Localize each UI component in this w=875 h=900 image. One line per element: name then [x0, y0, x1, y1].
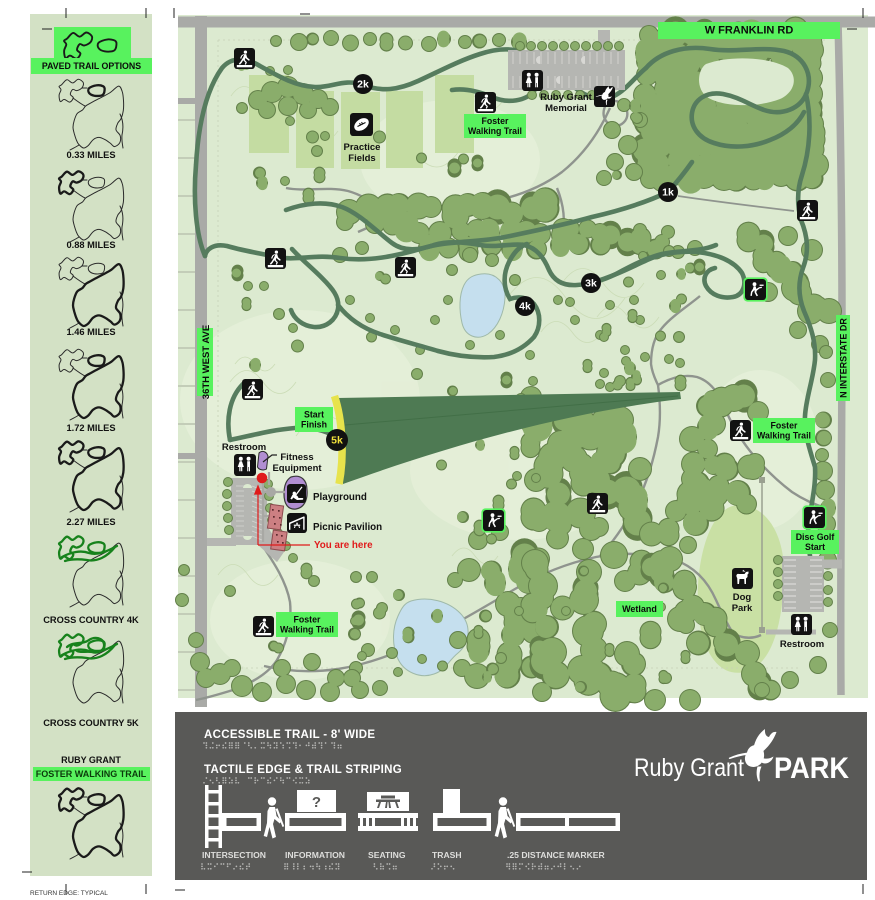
svg-text:CROSS COUNTRY 4K: CROSS COUNTRY 4K — [43, 615, 139, 625]
svg-text:Walking Trail: Walking Trail — [280, 625, 334, 635]
svg-text:Fitness: Fitness — [280, 452, 313, 463]
svg-text:0.33 MILES: 0.33 MILES — [66, 150, 115, 160]
svg-text:Start: Start — [304, 410, 324, 420]
svg-text:PAVED TRAIL OPTIONS: PAVED TRAIL OPTIONS — [42, 61, 141, 71]
svg-text:TACTILE EDGE & TRAIL STRIPING: TACTILE EDGE & TRAIL STRIPING — [204, 764, 402, 776]
svg-text:?: ? — [312, 794, 321, 811]
svg-text:Start: Start — [805, 542, 825, 552]
svg-text:RUBY GRANT: RUBY GRANT — [61, 755, 121, 765]
svg-text:1k: 1k — [662, 186, 674, 198]
svg-text:TRASH: TRASH — [432, 850, 462, 860]
svg-text:Dog: Dog — [733, 592, 752, 603]
svg-text:Walking Trail: Walking Trail — [468, 126, 522, 136]
svg-text:ACCESSIBLE TRAIL - 8' WIDE: ACCESSIBLE TRAIL - 8' WIDE — [204, 729, 375, 741]
svg-text:.25 DISTANCE MARKER: .25 DISTANCE MARKER — [507, 850, 606, 860]
svg-text:Foster: Foster — [294, 615, 321, 625]
svg-text:Picnic Pavilion: Picnic Pavilion — [313, 522, 382, 533]
svg-text:SEATING: SEATING — [368, 850, 406, 860]
svg-text:Fields: Fields — [348, 153, 375, 164]
svg-text:INFORMATION: INFORMATION — [285, 850, 345, 860]
svg-text:Memorial: Memorial — [545, 103, 587, 114]
svg-text:36TH WEST AVE: 36TH WEST AVE — [201, 325, 212, 399]
svg-text:Ruby Grant: Ruby Grant — [634, 754, 744, 782]
svg-text:INTERSECTION: INTERSECTION — [202, 850, 266, 860]
svg-text:1.46 MILES: 1.46 MILES — [66, 327, 115, 337]
svg-text:4k: 4k — [519, 300, 531, 312]
svg-text:FOSTER WALKING TRAIL: FOSTER WALKING TRAIL — [36, 769, 147, 779]
svg-text:1.72 MILES: 1.72 MILES — [66, 423, 115, 433]
svg-text:3k: 3k — [585, 277, 597, 289]
svg-text:Foster: Foster — [771, 421, 798, 431]
svg-text:N INTERSTATE DR: N INTERSTATE DR — [839, 318, 849, 398]
svg-text:2.27 MILES: 2.27 MILES — [66, 517, 115, 527]
svg-text:Wetland: Wetland — [622, 604, 657, 614]
svg-text:Equipment: Equipment — [272, 463, 322, 474]
svg-text:Park: Park — [732, 603, 753, 614]
svg-text:Foster: Foster — [482, 116, 509, 126]
svg-text:W FRANKLIN RD: W FRANKLIN RD — [705, 25, 794, 37]
svg-text:Restroom: Restroom — [222, 442, 266, 453]
svg-text:Practice: Practice — [344, 142, 381, 153]
svg-text:Ruby Grant: Ruby Grant — [540, 92, 593, 103]
svg-text:Restroom: Restroom — [780, 639, 824, 650]
svg-text:5k: 5k — [331, 434, 343, 446]
svg-text:PARK: PARK — [774, 752, 849, 785]
svg-text:You are here: You are here — [314, 540, 373, 551]
svg-text:0.88 MILES: 0.88 MILES — [66, 240, 115, 250]
svg-text:2k: 2k — [357, 78, 369, 90]
svg-text:Playground: Playground — [313, 492, 367, 503]
svg-text:Finish: Finish — [301, 420, 327, 430]
svg-text:Disc Golf: Disc Golf — [796, 532, 835, 542]
svg-text:RETURN EDGE: TYPICAL: RETURN EDGE: TYPICAL — [30, 890, 108, 897]
svg-text:Walking Trail: Walking Trail — [757, 431, 811, 441]
svg-text:CROSS COUNTRY 5K: CROSS COUNTRY 5K — [43, 718, 139, 728]
